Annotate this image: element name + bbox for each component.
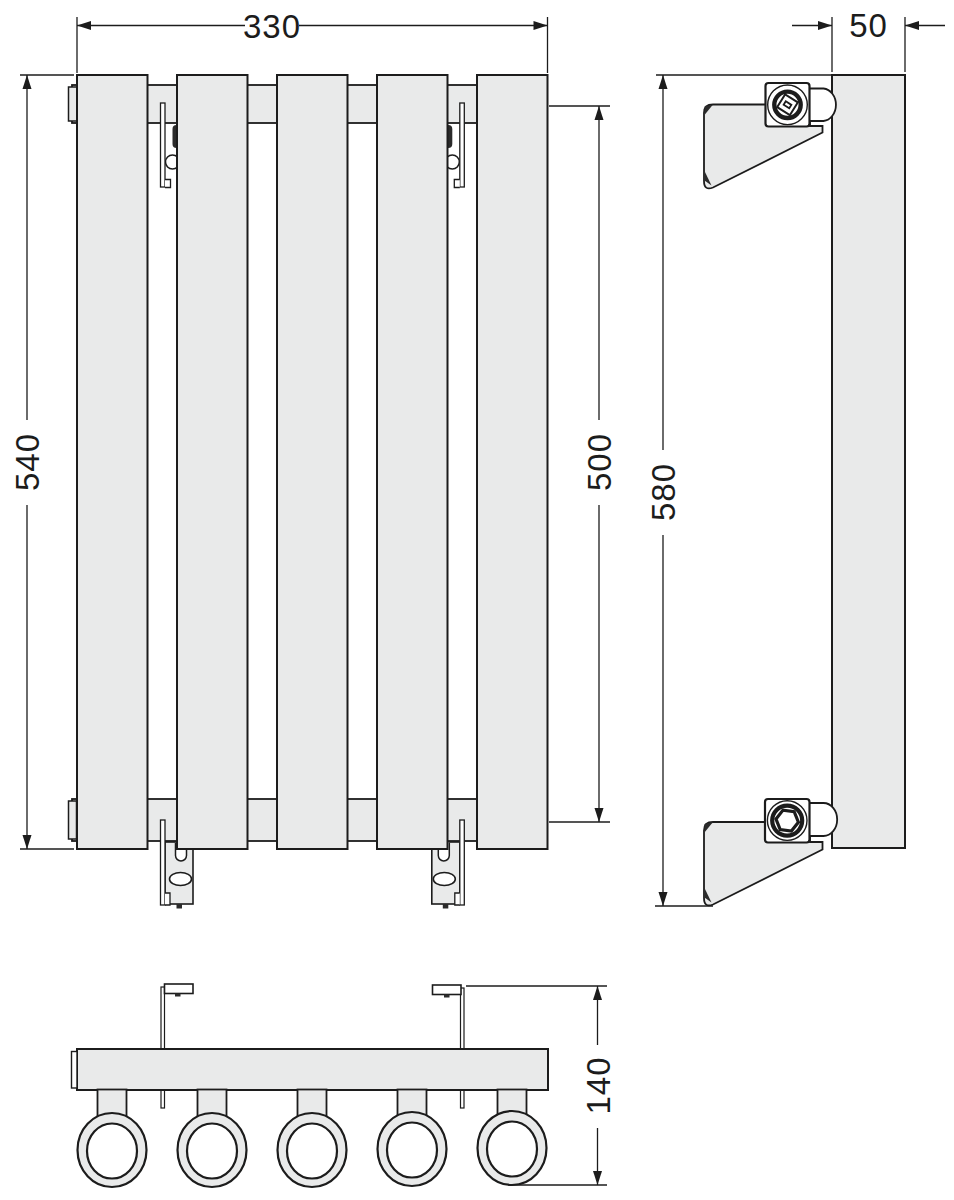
drawing-canvas: 330 540 500 <box>0 0 954 1200</box>
tube-ring-2 <box>178 1113 247 1187</box>
dimension-front-width: 330 <box>77 8 548 73</box>
bottom-view: 140 <box>72 984 617 1187</box>
arrow-down-icon <box>23 835 32 849</box>
hex-socket-icon <box>776 810 798 831</box>
arrow-right-icon <box>534 21 548 30</box>
panel-5 <box>477 75 548 849</box>
dim-side-depth-label: 50 <box>849 7 888 44</box>
side-bottom-connector <box>809 803 837 836</box>
arrow-down-icon <box>595 808 604 822</box>
arrow-up-icon <box>595 106 604 120</box>
tube-ring-5 <box>478 1111 547 1185</box>
tube-ring-4 <box>378 1112 447 1186</box>
dim-bottom-depth-label: 140 <box>580 1056 617 1114</box>
dimension-connection-spacing: 500 <box>549 106 618 822</box>
tube-ring-3 <box>278 1113 347 1187</box>
front-panels <box>77 75 548 849</box>
side-panel-bar <box>832 75 905 848</box>
technical-drawing-page: 330 540 500 <box>0 0 954 1200</box>
panel-3 <box>277 75 348 849</box>
arrow-up-icon <box>23 75 32 89</box>
arrow-up-icon <box>593 986 602 1000</box>
bottom-tube-rings <box>78 1111 547 1187</box>
front-view: 330 540 500 <box>9 8 618 909</box>
dim-front-height-label: 540 <box>9 433 46 491</box>
panel-2 <box>177 75 248 849</box>
arrow-left-icon <box>77 21 91 30</box>
arrow-up-icon <box>659 75 668 89</box>
panel-1 <box>77 75 148 849</box>
panel-4 <box>377 75 448 849</box>
dimension-side-depth: 50 <box>792 7 945 72</box>
arrow-down-icon <box>659 892 668 906</box>
arrow-left-icon <box>905 21 919 30</box>
arrow-right-icon <box>818 21 832 30</box>
side-top-connector <box>809 89 836 122</box>
dim-connection-spacing-label: 500 <box>581 433 618 491</box>
side-valve-bottom <box>765 799 810 843</box>
side-valve-top <box>766 83 810 127</box>
side-view: 50 580 <box>645 7 945 906</box>
dimension-front-height: 540 <box>9 75 74 849</box>
dim-side-height-label: 580 <box>645 463 682 521</box>
tube-ring-1 <box>78 1113 147 1187</box>
bottom-panel-bar <box>72 1049 549 1090</box>
dimension-side-height: 580 <box>645 75 713 906</box>
dim-front-width-label: 330 <box>243 8 301 45</box>
arrow-down-icon <box>593 1171 602 1185</box>
